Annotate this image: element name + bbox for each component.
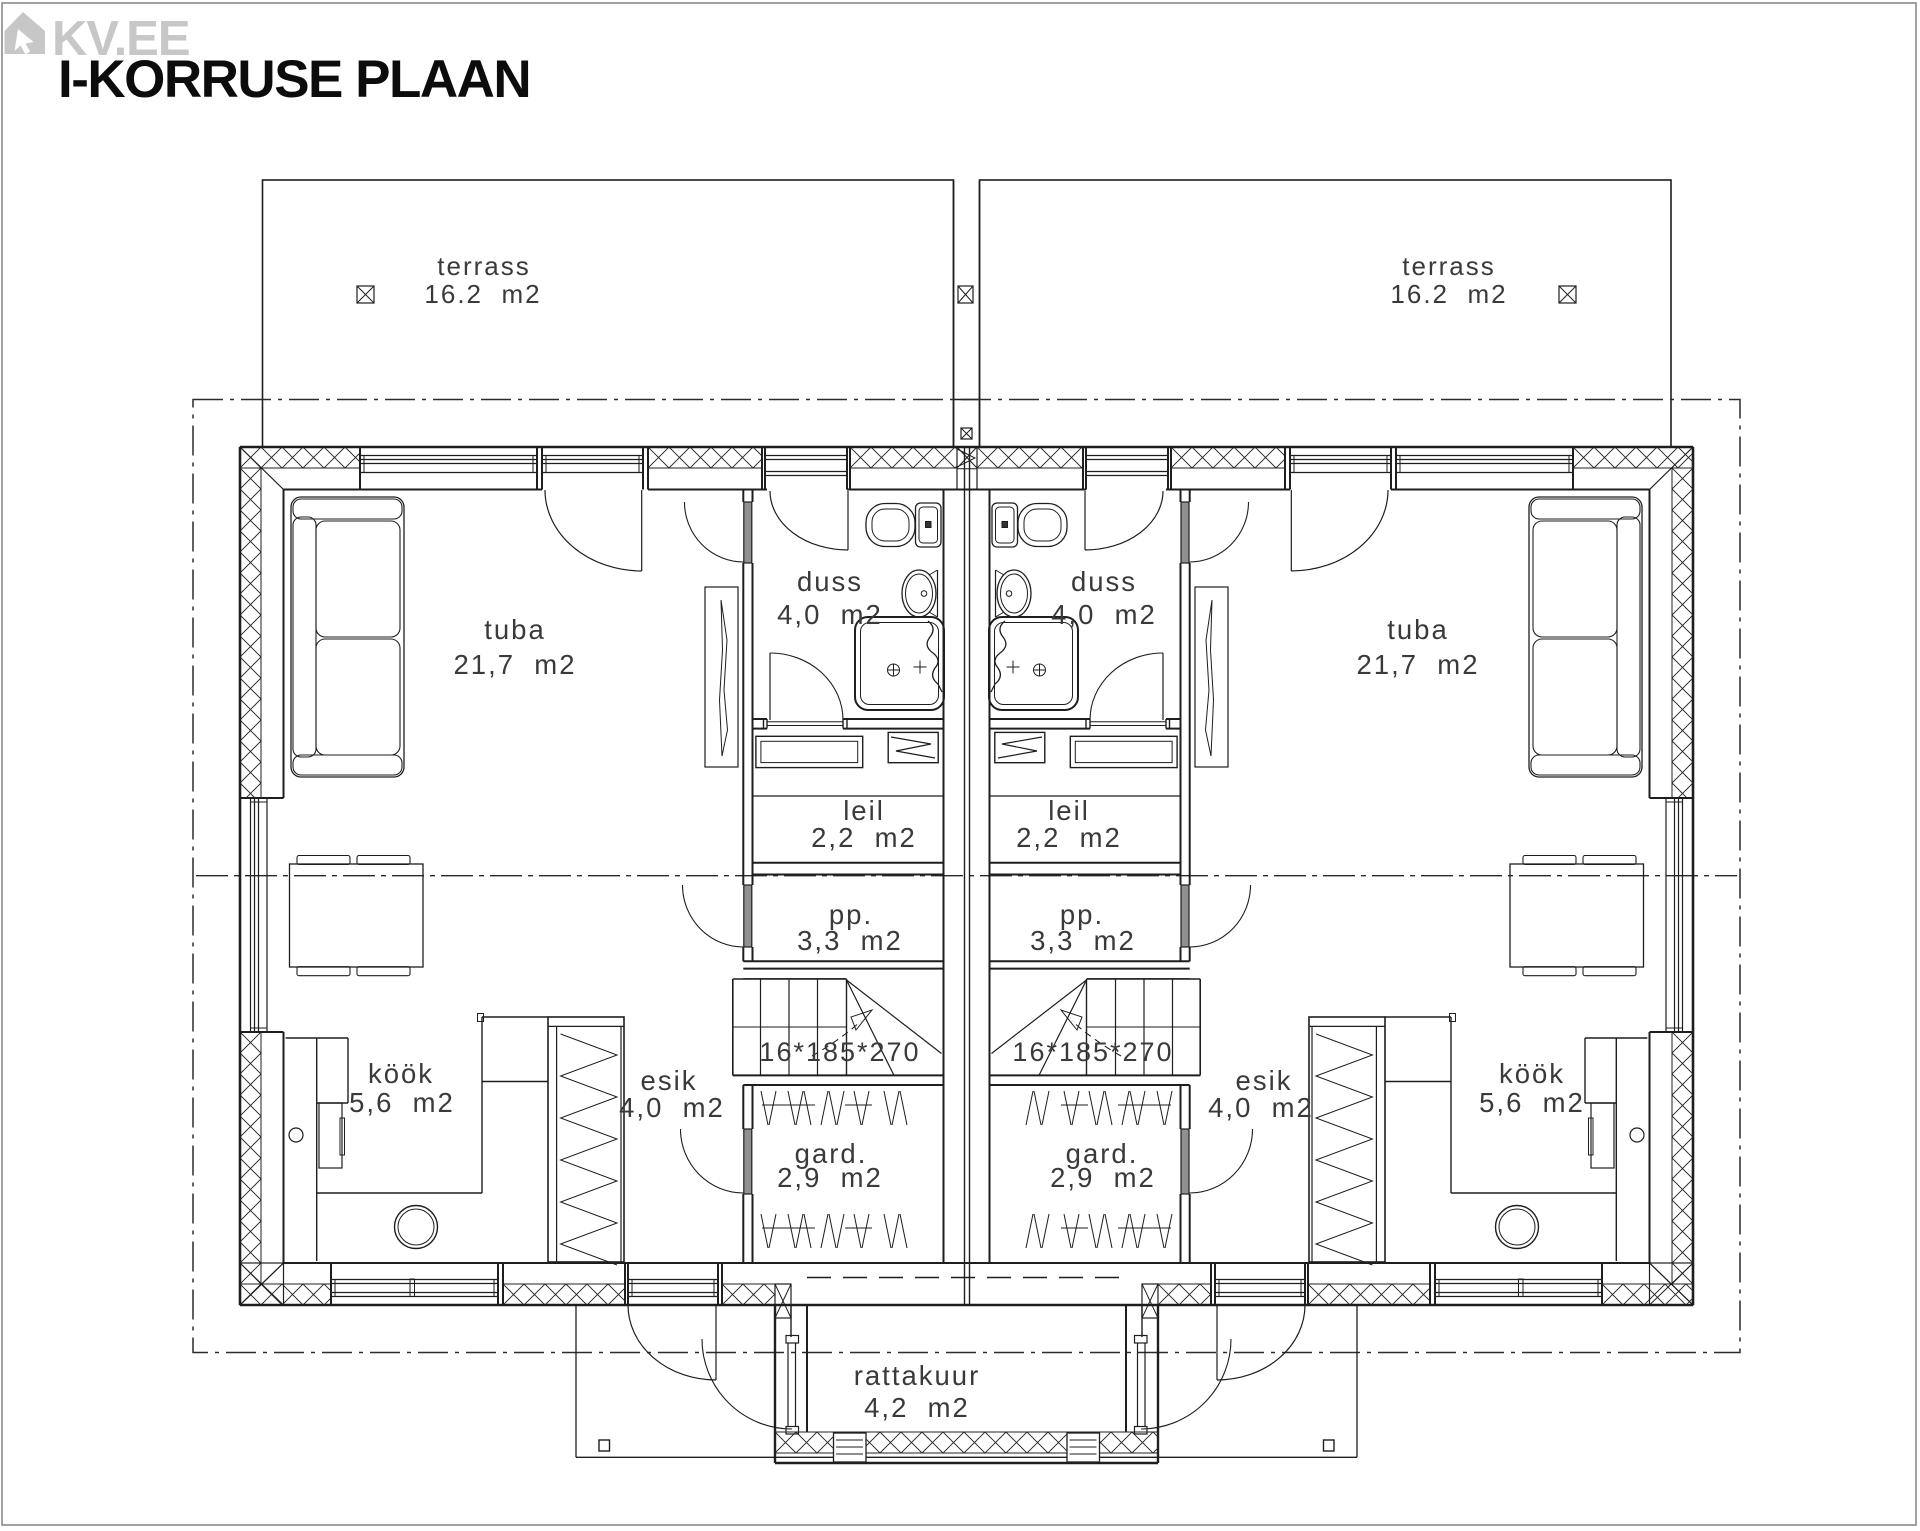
svg-text:21,7 m2: 21,7 m2 [1356, 649, 1479, 680]
svg-text:I-KORRUSE PLAAN: I-KORRUSE PLAAN [58, 50, 530, 109]
svg-text:köök: köök [368, 1058, 434, 1089]
svg-text:tuba: tuba [484, 614, 546, 645]
svg-text:16*185*270: 16*185*270 [1012, 1037, 1173, 1067]
svg-text:3,3 m2: 3,3 m2 [797, 925, 903, 956]
svg-text:4,0 m2: 4,0 m2 [777, 599, 883, 630]
svg-text:2,2 m2: 2,2 m2 [1016, 822, 1122, 853]
svg-text:4,0 m2: 4,0 m2 [619, 1092, 725, 1123]
svg-text:4,0 m2: 4,0 m2 [1208, 1092, 1314, 1123]
svg-text:21,7 m2: 21,7 m2 [453, 649, 576, 680]
svg-text:2,9 m2: 2,9 m2 [1050, 1162, 1156, 1193]
svg-text:tuba: tuba [1387, 614, 1449, 645]
svg-text:16*185*270: 16*185*270 [759, 1037, 920, 1067]
svg-text:duss: duss [1071, 566, 1137, 597]
svg-text:4,0 m2: 4,0 m2 [1051, 599, 1157, 630]
svg-text:3,3 m2: 3,3 m2 [1030, 925, 1136, 956]
svg-text:2,2 m2: 2,2 m2 [811, 822, 917, 853]
svg-text:terrass: terrass [1402, 251, 1495, 281]
svg-text:rattakuur: rattakuur [854, 1360, 981, 1391]
svg-text:5,6 m2: 5,6 m2 [1479, 1087, 1585, 1118]
svg-text:2,9 m2: 2,9 m2 [777, 1162, 883, 1193]
svg-text:4,2 m2: 4,2 m2 [864, 1392, 970, 1423]
svg-text:terrass: terrass [437, 251, 530, 281]
svg-text:duss: duss [797, 566, 863, 597]
svg-text:5,6 m2: 5,6 m2 [349, 1087, 455, 1118]
svg-text:köök: köök [1499, 1058, 1565, 1089]
svg-text:16.2 m2: 16.2 m2 [424, 279, 541, 309]
svg-text:16.2 m2: 16.2 m2 [1390, 279, 1507, 309]
